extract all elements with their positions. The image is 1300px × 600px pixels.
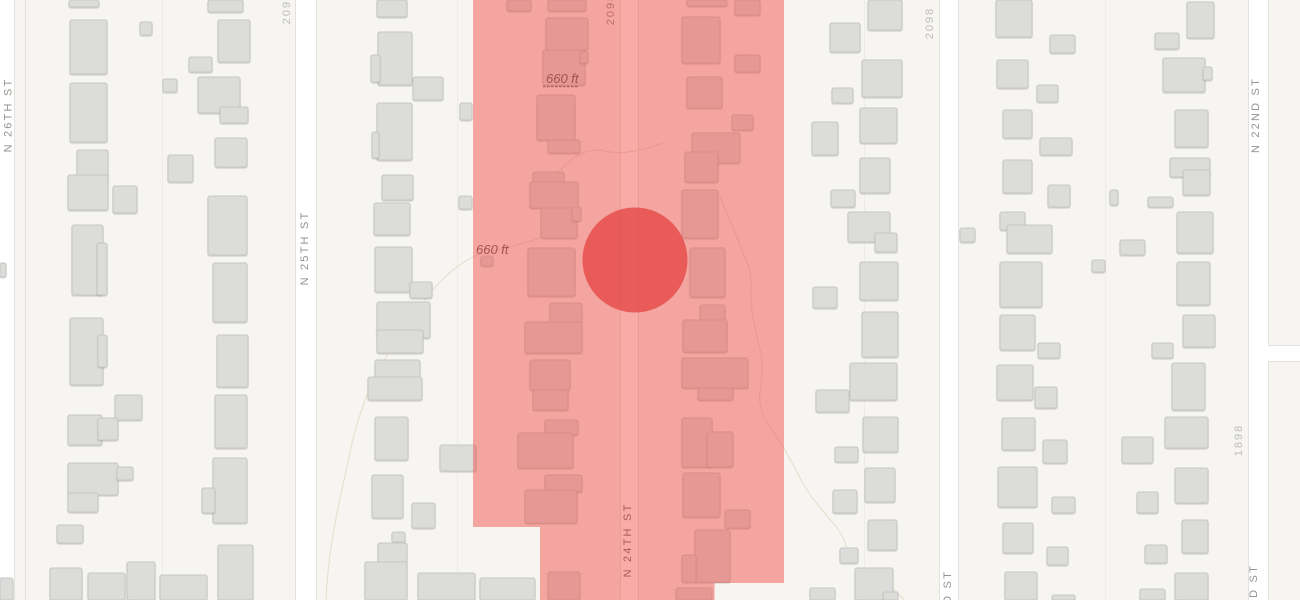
svg-text:N 22ND ST: N 22ND ST xyxy=(1250,77,1262,153)
svg-text:N 26TH ST: N 26TH ST xyxy=(2,78,14,153)
svg-text:N 22ND ST: N 22ND ST xyxy=(1248,564,1260,600)
svg-text:N 23RD ST: N 23RD ST xyxy=(942,570,954,600)
svg-text:1898: 1898 xyxy=(1233,424,1245,456)
svg-text:N 25TH ST: N 25TH ST xyxy=(299,211,311,286)
svg-text:2091: 2091 xyxy=(281,0,293,24)
svg-text:2098: 2098 xyxy=(924,7,936,39)
